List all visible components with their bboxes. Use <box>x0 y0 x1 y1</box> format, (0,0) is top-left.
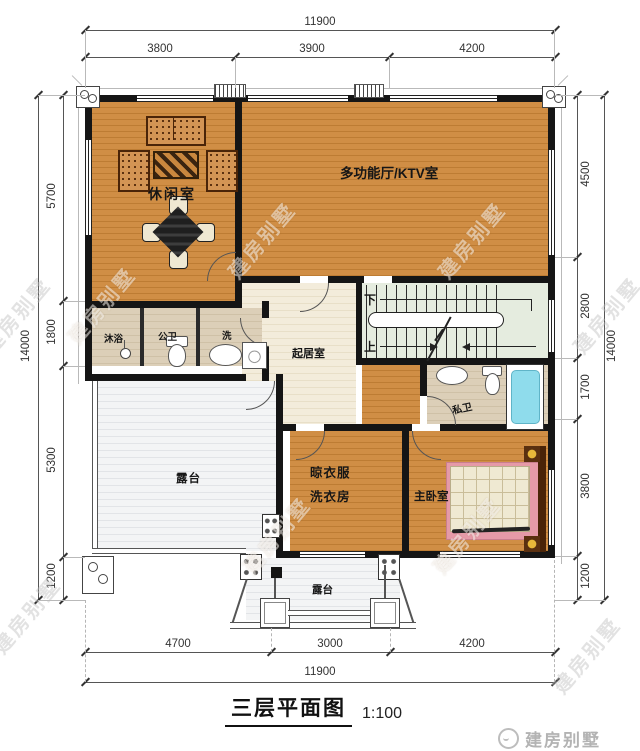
dim-top-seg-1: 3800 <box>130 43 190 55</box>
sofa-divider <box>173 118 174 140</box>
eave-line-top <box>78 88 562 89</box>
dim-line-top-segments <box>85 57 555 58</box>
ext-line <box>63 557 85 558</box>
sink-icon <box>209 344 242 366</box>
dim-right-seg-1: 4500 <box>580 144 592 204</box>
ext-line <box>555 257 577 258</box>
brand-logo-icon <box>498 728 519 749</box>
stair-line-down <box>380 299 532 300</box>
window-top-ktv-2 <box>390 95 497 102</box>
dim-line-bottom-total <box>85 682 555 683</box>
ext-line <box>555 600 605 601</box>
dim-top-seg-2: 3900 <box>282 43 342 55</box>
terrace-post-right <box>370 598 400 628</box>
ext-line <box>555 358 577 359</box>
master-bedroom-label: 主卧室 <box>414 488 449 504</box>
pilaster-bl-circle-2 <box>98 574 108 584</box>
wall-ktv-bottom-2 <box>328 276 364 283</box>
public-wc-label: 公卫 <box>158 329 177 343</box>
dim-right-seg-4: 3800 <box>580 456 592 516</box>
ext-line <box>63 366 85 367</box>
dim-right-seg-2: 2800 <box>580 276 592 336</box>
wall-laundry-top-1 <box>283 424 296 431</box>
centerline <box>390 628 391 652</box>
window-right-stair <box>548 300 555 352</box>
ac-unit-icon-1 <box>214 84 246 98</box>
terrace-rail-between-posts <box>288 610 370 616</box>
wall-hall-left-1 <box>262 301 269 318</box>
eave-line-left <box>78 88 79 384</box>
washing-machine-icon <box>242 342 267 369</box>
ktv-room-label: 多功能厅/KTV室 <box>340 162 438 182</box>
wall-ktv-bottom-1 <box>242 276 300 283</box>
wall-hall-right <box>356 283 362 358</box>
ext-line <box>389 57 390 88</box>
centerline <box>271 628 272 652</box>
terrace-column-cap <box>271 567 282 578</box>
dim-top-total: 11900 <box>290 16 350 28</box>
drawing-scale: 1:100 <box>362 705 402 727</box>
wall-laundry-top-2 <box>324 424 409 431</box>
nightstand-lamp-icon-bottom <box>524 536 540 552</box>
armchair-left-icon <box>118 150 150 192</box>
coffee-table-icon <box>153 151 199 179</box>
eave-corner-tr <box>558 75 569 86</box>
corridor-floor <box>362 365 420 424</box>
window-top-ktv-1 <box>248 95 348 102</box>
dim-line-right-segments <box>577 95 578 600</box>
dim-bottom-seg-1: 4700 <box>148 638 208 650</box>
ktv-room-floor <box>242 102 548 276</box>
bed-quilt <box>450 466 530 532</box>
stair-line-up <box>380 346 432 347</box>
drawing-title-block: 三层平面图 1:100 <box>225 692 402 727</box>
hall-label: 起居室 <box>292 345 325 361</box>
sofa-icon <box>146 116 206 146</box>
pilaster-tl-circle-2 <box>88 94 97 103</box>
ext-line <box>38 95 85 96</box>
post-terrace-bottom-right <box>378 554 400 580</box>
centerline <box>554 560 555 682</box>
dim-line-right-total <box>604 95 605 600</box>
ext-line <box>235 57 236 88</box>
wall-leisure-bottom <box>85 301 242 308</box>
terrace-post-stem-left <box>274 578 276 600</box>
wall-bath-partition-2 <box>196 308 200 366</box>
tick <box>551 647 560 656</box>
terrace-post-stem-right <box>384 565 386 600</box>
window-bottom-bedroom <box>440 551 520 558</box>
wall-bottom-3 <box>520 551 555 558</box>
terrace-post-left <box>260 598 290 628</box>
shower-label: 沐浴 <box>104 331 123 345</box>
dim-line-bottom-segments <box>85 652 555 653</box>
leisure-room-label: 休闲室 <box>148 184 196 204</box>
stair-line-down-turn <box>531 299 532 311</box>
wall-leisure-right <box>235 95 242 308</box>
wall-private-bath-left <box>420 365 427 396</box>
dim-top-seg-3: 4200 <box>442 43 502 55</box>
terrace-bottom-label: 露台 <box>312 582 333 597</box>
dim-right-total: 14000 <box>606 316 618 376</box>
stair-up-label: 上 <box>364 338 376 355</box>
post-terrace-bottom-left <box>240 554 262 580</box>
terrace-left-railing-south <box>92 548 246 554</box>
wall-bottom-1 <box>283 551 300 558</box>
dim-left-seg-1: 5700 <box>46 166 58 226</box>
watermark: 建房别墅 <box>545 610 626 699</box>
dim-left-seg-4: 1200 <box>46 546 58 606</box>
wall-bedroom-top-1 <box>409 424 412 431</box>
window-right-ktv <box>548 150 555 255</box>
wall-ktv-bottom-3 <box>392 276 555 283</box>
dim-line-top-total <box>85 30 555 31</box>
dim-bottom-seg-3: 4200 <box>442 638 502 650</box>
dim-left-seg-2: 1800 <box>46 302 58 362</box>
nightstand-lamp-icon-top <box>524 446 540 462</box>
eave-line-right <box>561 88 562 564</box>
wash-label: 洗 <box>222 328 232 342</box>
tick <box>551 52 560 61</box>
private-toilet-bowl-icon <box>485 373 500 395</box>
window-top-leisure <box>137 95 213 102</box>
ac-unit-icon-2 <box>354 84 384 98</box>
terrace-flare-right <box>398 579 415 627</box>
stair-handrail <box>368 312 504 328</box>
post-terrace-corner <box>262 514 280 538</box>
brand-block: 建房别墅 <box>498 726 601 751</box>
window-right-bedroom <box>548 470 555 545</box>
private-sink-icon <box>436 366 468 385</box>
dim-left-seg-3: 5300 <box>46 430 58 490</box>
tick <box>551 677 560 686</box>
ext-line <box>63 301 85 302</box>
wall-terrace-top <box>85 374 246 381</box>
floor-drain-icon <box>120 348 131 359</box>
ext-line <box>555 95 605 96</box>
tick <box>551 25 560 34</box>
wall-bottom-2 <box>365 551 440 558</box>
terrace-left-railing-west <box>92 381 98 551</box>
dim-line-left-segments <box>63 95 64 600</box>
ext-line <box>85 30 86 88</box>
stair-line-return <box>470 346 536 347</box>
ext-line <box>38 600 85 601</box>
bathtub-inner <box>511 370 540 424</box>
stair-arrow-return-icon <box>462 343 470 351</box>
pilaster-bl-circle-1 <box>88 562 98 572</box>
ext-line <box>554 30 555 88</box>
laundry-label-line1: 晾衣服 <box>310 462 351 481</box>
terrace-flare-left <box>230 579 247 627</box>
wall-left <box>85 95 92 381</box>
toilet-bowl-icon <box>168 344 186 367</box>
window-left-leisure <box>85 140 92 235</box>
ext-line <box>555 556 577 557</box>
brand-name: 建房别墅 <box>525 726 601 751</box>
floor-drain-stem <box>124 340 125 348</box>
centerline <box>85 600 86 682</box>
window-bottom-laundry <box>300 551 365 558</box>
drawing-title: 三层平面图 <box>225 692 352 727</box>
laundry-label-line2: 洗衣房 <box>310 486 351 505</box>
dim-bottom-total: 11900 <box>290 666 350 678</box>
dim-line-left-total <box>38 95 39 600</box>
wall-bath-partition-1 <box>140 308 144 366</box>
floor-plan-canvas: 下 上 休闲室 多功能厅/KTV <box>0 0 640 751</box>
ext-line <box>555 419 577 420</box>
eave-corner-tl <box>72 75 83 86</box>
terrace-left-label: 露台 <box>176 470 201 486</box>
dim-left-total: 14000 <box>20 316 32 376</box>
stair-down-label: 下 <box>364 291 376 308</box>
dim-bottom-seg-2: 3000 <box>300 638 360 650</box>
armchair-right-icon <box>206 150 238 192</box>
dim-right-seg-3: 1700 <box>580 357 592 417</box>
wall-laundry-right <box>402 424 409 558</box>
